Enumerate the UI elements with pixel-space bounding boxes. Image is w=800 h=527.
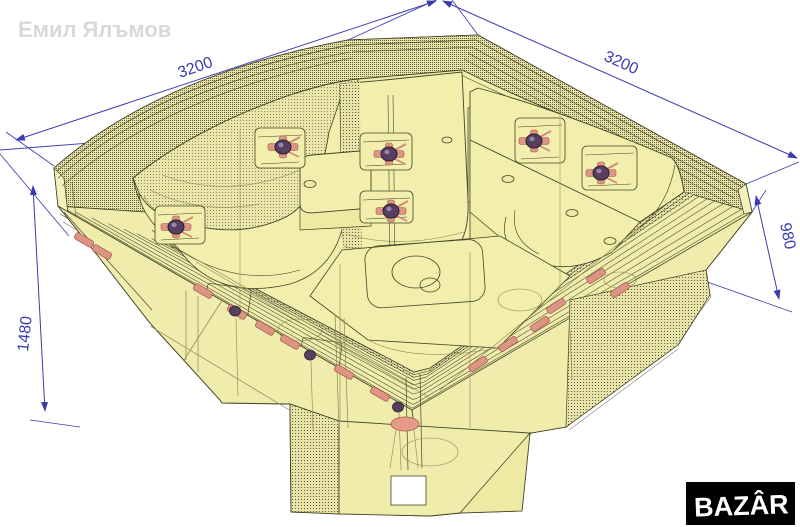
- svg-text:Емил Ялъмов: Емил Ялъмов: [18, 17, 171, 42]
- svg-text:BAZÂR: BAZÂR: [694, 488, 790, 522]
